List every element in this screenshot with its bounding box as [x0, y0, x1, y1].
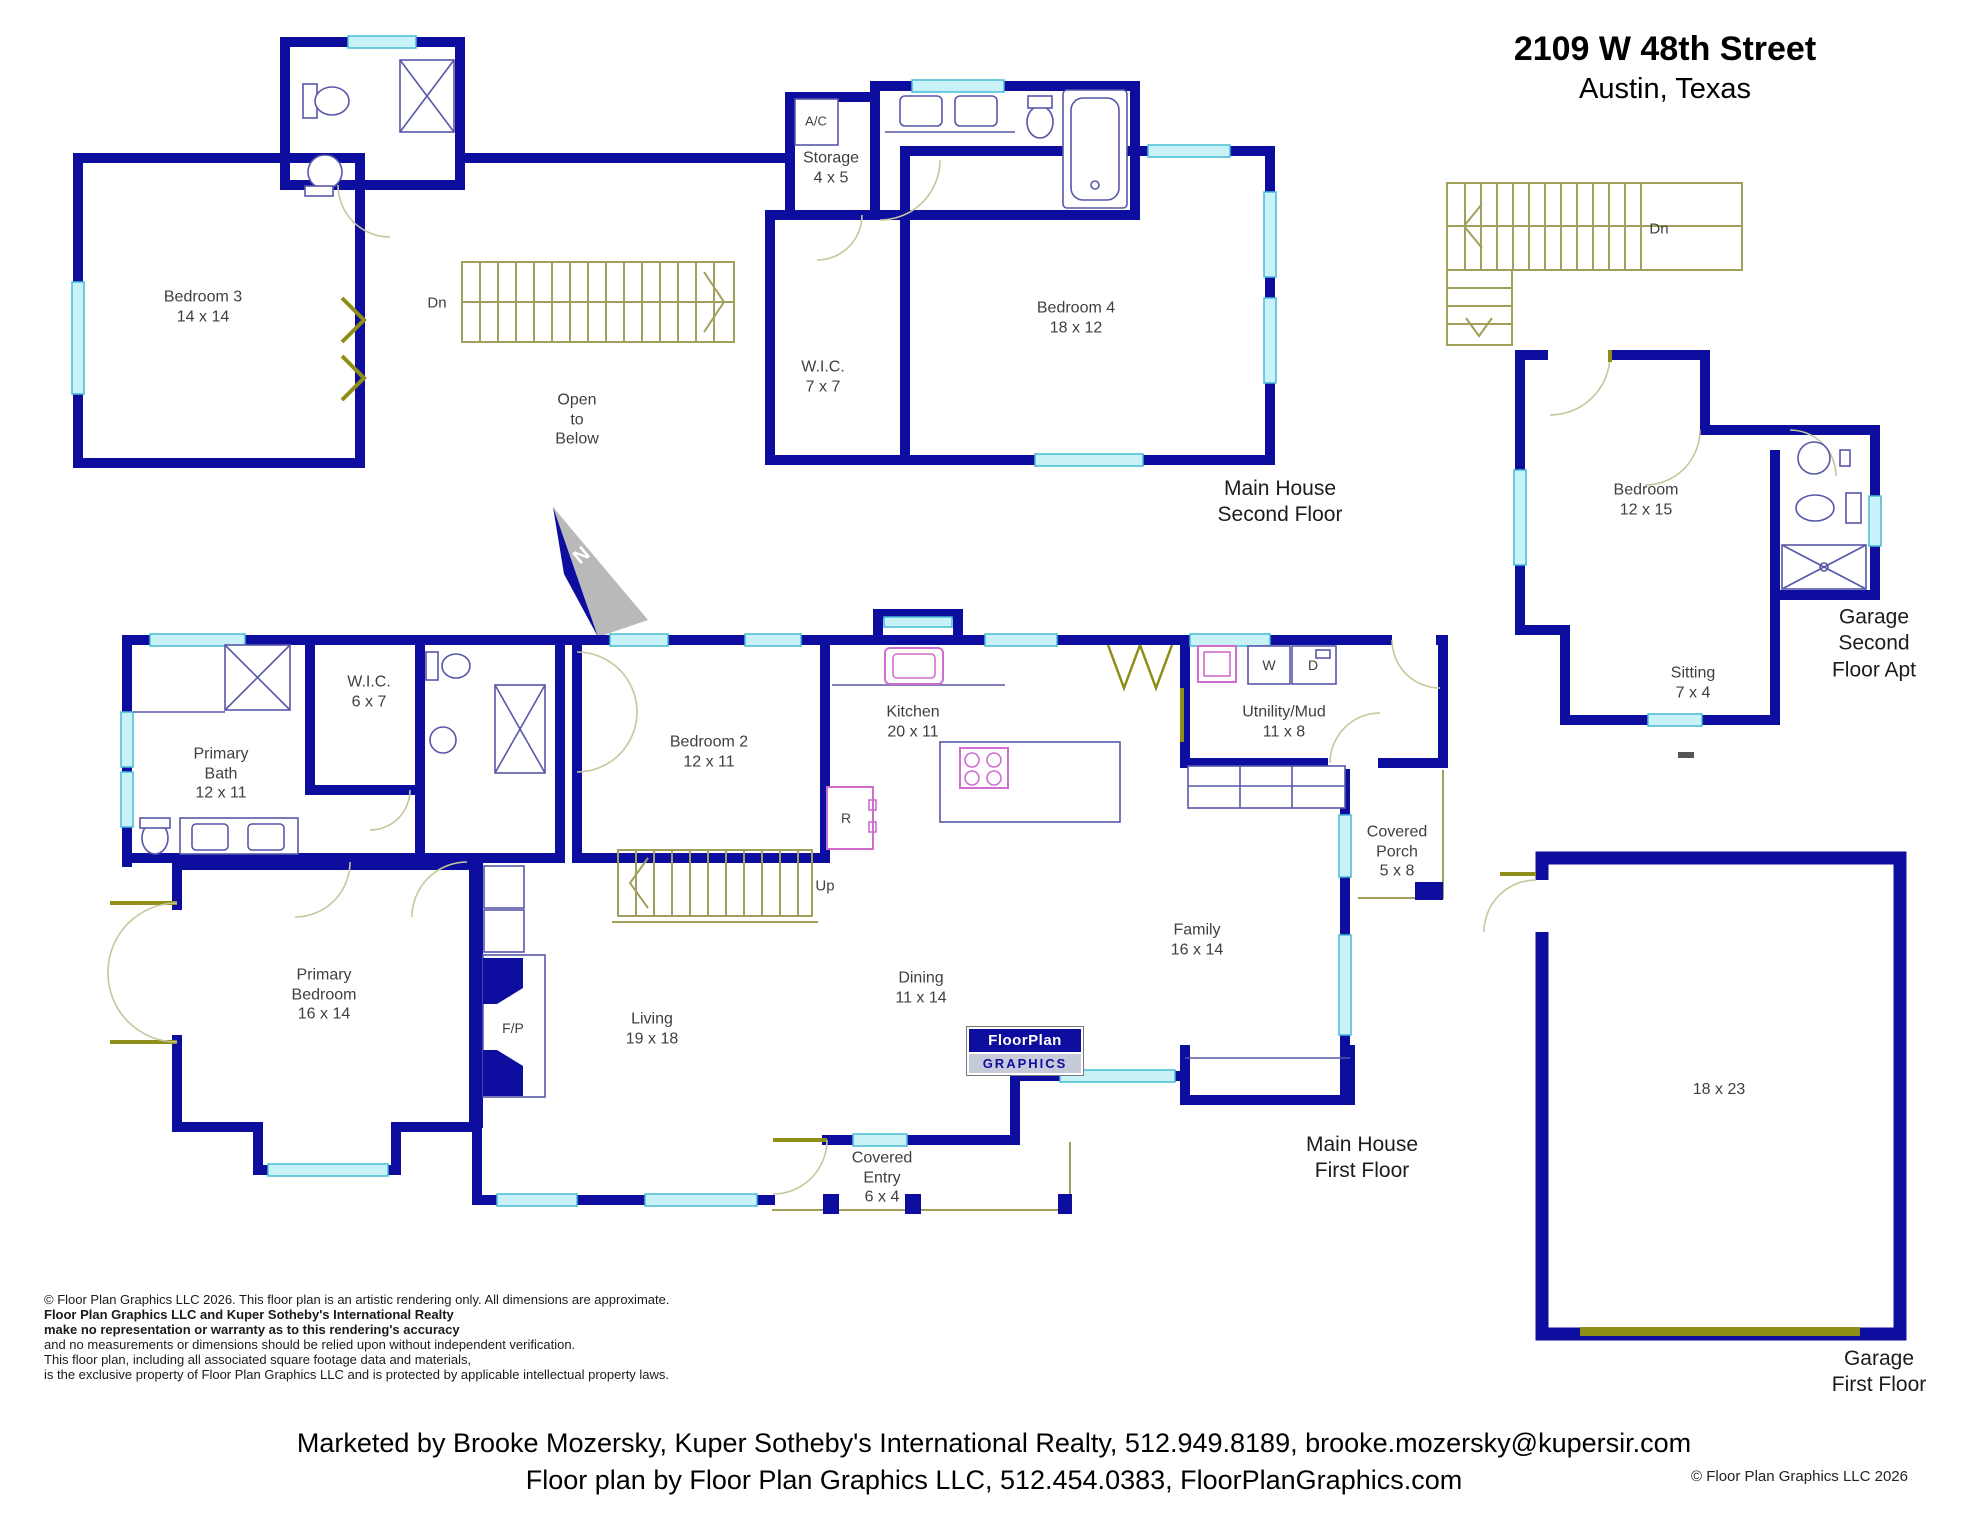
room-label-utility: Utnility/Mud11 x 8	[1242, 702, 1326, 741]
room-dims: 12 x 11	[193, 784, 248, 804]
logo-line2: GRAPHICS	[969, 1054, 1081, 1073]
room-name: Bedroom 2	[670, 732, 748, 752]
garage-apt-stairs	[1447, 183, 1742, 345]
section-label-main-first: Main House First Floor	[1306, 1132, 1418, 1185]
room-label-kitchen: Kitchen20 x 11	[886, 702, 939, 741]
garage-stairs-dn-label: Dn	[1649, 221, 1668, 238]
disclaimer-line: and no measurements or dimensions should…	[44, 1337, 669, 1352]
room-dims: 16 x 14	[1171, 940, 1223, 960]
room-name: W.I.C.	[801, 357, 845, 377]
room-name: Living	[626, 1009, 678, 1029]
room-name: Primary Bath	[193, 745, 248, 784]
room-dims: 7 x 4	[1671, 683, 1715, 703]
room-name: Bedroom 4	[1037, 298, 1115, 318]
floorplan-graphics-logo: FloorPlan GRAPHICS	[966, 1026, 1084, 1076]
room-label-bedroom3: Bedroom 314 x 14	[164, 287, 242, 326]
section-label-garage-apt: Garage Second Floor Apt	[1817, 605, 1931, 684]
room-name: Covered Entry	[852, 1149, 912, 1188]
fireplace-marker: F/P	[502, 1020, 524, 1036]
room-name: Covered Porch	[1367, 823, 1427, 862]
room-dims: 14 x 14	[164, 307, 242, 327]
dryer-marker: D	[1308, 657, 1318, 673]
ac-marker: A/C	[805, 114, 827, 129]
room-label-primary-bedroom: Primary Bedroom16 x 14	[292, 966, 357, 1025]
room-label-family: Family16 x 14	[1171, 920, 1223, 959]
room-label-dining: Dining11 x 14	[895, 968, 946, 1007]
room-label-bedroom4: Bedroom 418 x 12	[1037, 298, 1115, 337]
room-label-sitting: Sitting7 x 4	[1671, 663, 1715, 702]
room-dims: 19 x 18	[626, 1029, 678, 1049]
room-name: Dining	[895, 968, 946, 988]
room-name: Family	[1171, 920, 1223, 940]
room-dims: 12 x 15	[1614, 500, 1679, 520]
copyright-line: © Floor Plan Graphics LLC 2026	[1530, 1468, 1908, 1485]
washer-marker: W	[1262, 657, 1275, 673]
room-label-covered-porch: Covered Porch5 x 8	[1367, 823, 1427, 882]
logo-line1: FloorPlan	[969, 1029, 1081, 1052]
fridge-marker: R	[841, 810, 851, 826]
covered-entry-outline	[772, 1142, 1072, 1214]
disclaimer-block: © Floor Plan Graphics LLC 2026. This flo…	[44, 1292, 669, 1382]
room-dims: 5 x 8	[1367, 862, 1427, 882]
address-title: 2109 W 48th Street	[1440, 30, 1890, 69]
room-dims: 16 x 14	[292, 1005, 357, 1025]
disclaimer-line: is the exclusive property of Floor Plan …	[44, 1367, 669, 1382]
room-label-living: Living19 x 18	[626, 1009, 678, 1048]
room-dims: 6 x 7	[347, 692, 391, 712]
room-dims: 20 x 11	[886, 722, 939, 742]
section-label-garage-first: Garage First Floor	[1832, 1346, 1927, 1399]
room-dims: 11 x 8	[1242, 722, 1326, 742]
stairs-dn-label: Dn	[427, 295, 446, 312]
disclaimer-line: make no representation or warranty as to…	[44, 1322, 669, 1337]
room-label-wic-second: W.I.C.7 x 7	[801, 357, 845, 396]
room-dims: 18 x 12	[1037, 318, 1115, 338]
room-name: Utnility/Mud	[1242, 702, 1326, 722]
address-city: Austin, Texas	[1440, 73, 1890, 106]
room-label-garage: 18 x 23	[1693, 1080, 1745, 1100]
fireplace	[469, 858, 545, 1128]
room-label-bedroom2: Bedroom 212 x 11	[670, 732, 748, 771]
room-label-wic-first: W.I.C.6 x 7	[347, 672, 391, 711]
room-name: Open to Below	[555, 391, 599, 450]
garage-apt-doors	[1550, 350, 1836, 485]
north-arrow	[553, 507, 648, 637]
room-dims: 18 x 23	[1693, 1080, 1745, 1100]
room-name: W.I.C.	[347, 672, 391, 692]
room-dims: 11 x 14	[895, 988, 946, 1008]
room-label-apt-bedroom: Bedroom12 x 15	[1614, 480, 1679, 519]
disclaimer-line: This floor plan, including all associate…	[44, 1352, 669, 1367]
room-dims: 7 x 7	[801, 377, 845, 397]
room-dims: 12 x 11	[670, 752, 748, 772]
main-second-floor-stairs	[462, 262, 734, 342]
room-name: Storage	[803, 148, 859, 168]
stairs-up-label: Up	[815, 878, 834, 895]
section-label-main-second: Main House Second Floor	[1218, 476, 1343, 529]
room-label-covered-entry: Covered Entry6 x 4	[852, 1149, 912, 1208]
room-name: Kitchen	[886, 702, 939, 722]
room-name: Bedroom	[1614, 480, 1679, 500]
disclaimer-line: © Floor Plan Graphics LLC 2026. This flo…	[44, 1292, 669, 1307]
floor-plan-page: 2109 W 48th Street Austin, Texas Bedroom…	[0, 0, 1988, 1536]
room-dims: 4 x 5	[803, 168, 859, 188]
room-label-storage: Storage4 x 5	[803, 148, 859, 187]
room-name: Sitting	[1671, 663, 1715, 683]
room-dims: 6 x 4	[852, 1188, 912, 1208]
disclaimer-line: Floor Plan Graphics LLC and Kuper Sotheb…	[44, 1307, 669, 1322]
room-label-open-to-below: Open to Below	[555, 391, 599, 450]
room-name: Bedroom 3	[164, 287, 242, 307]
room-label-primary-bath: Primary Bath12 x 11	[193, 745, 248, 804]
marketing-line: Marketed by Brooke Mozersky, Kuper Sothe…	[0, 1428, 1988, 1459]
main-second-floor-doors	[338, 160, 940, 400]
room-name: Primary Bedroom	[292, 966, 357, 1005]
title-block: 2109 W 48th Street Austin, Texas	[1440, 30, 1890, 106]
